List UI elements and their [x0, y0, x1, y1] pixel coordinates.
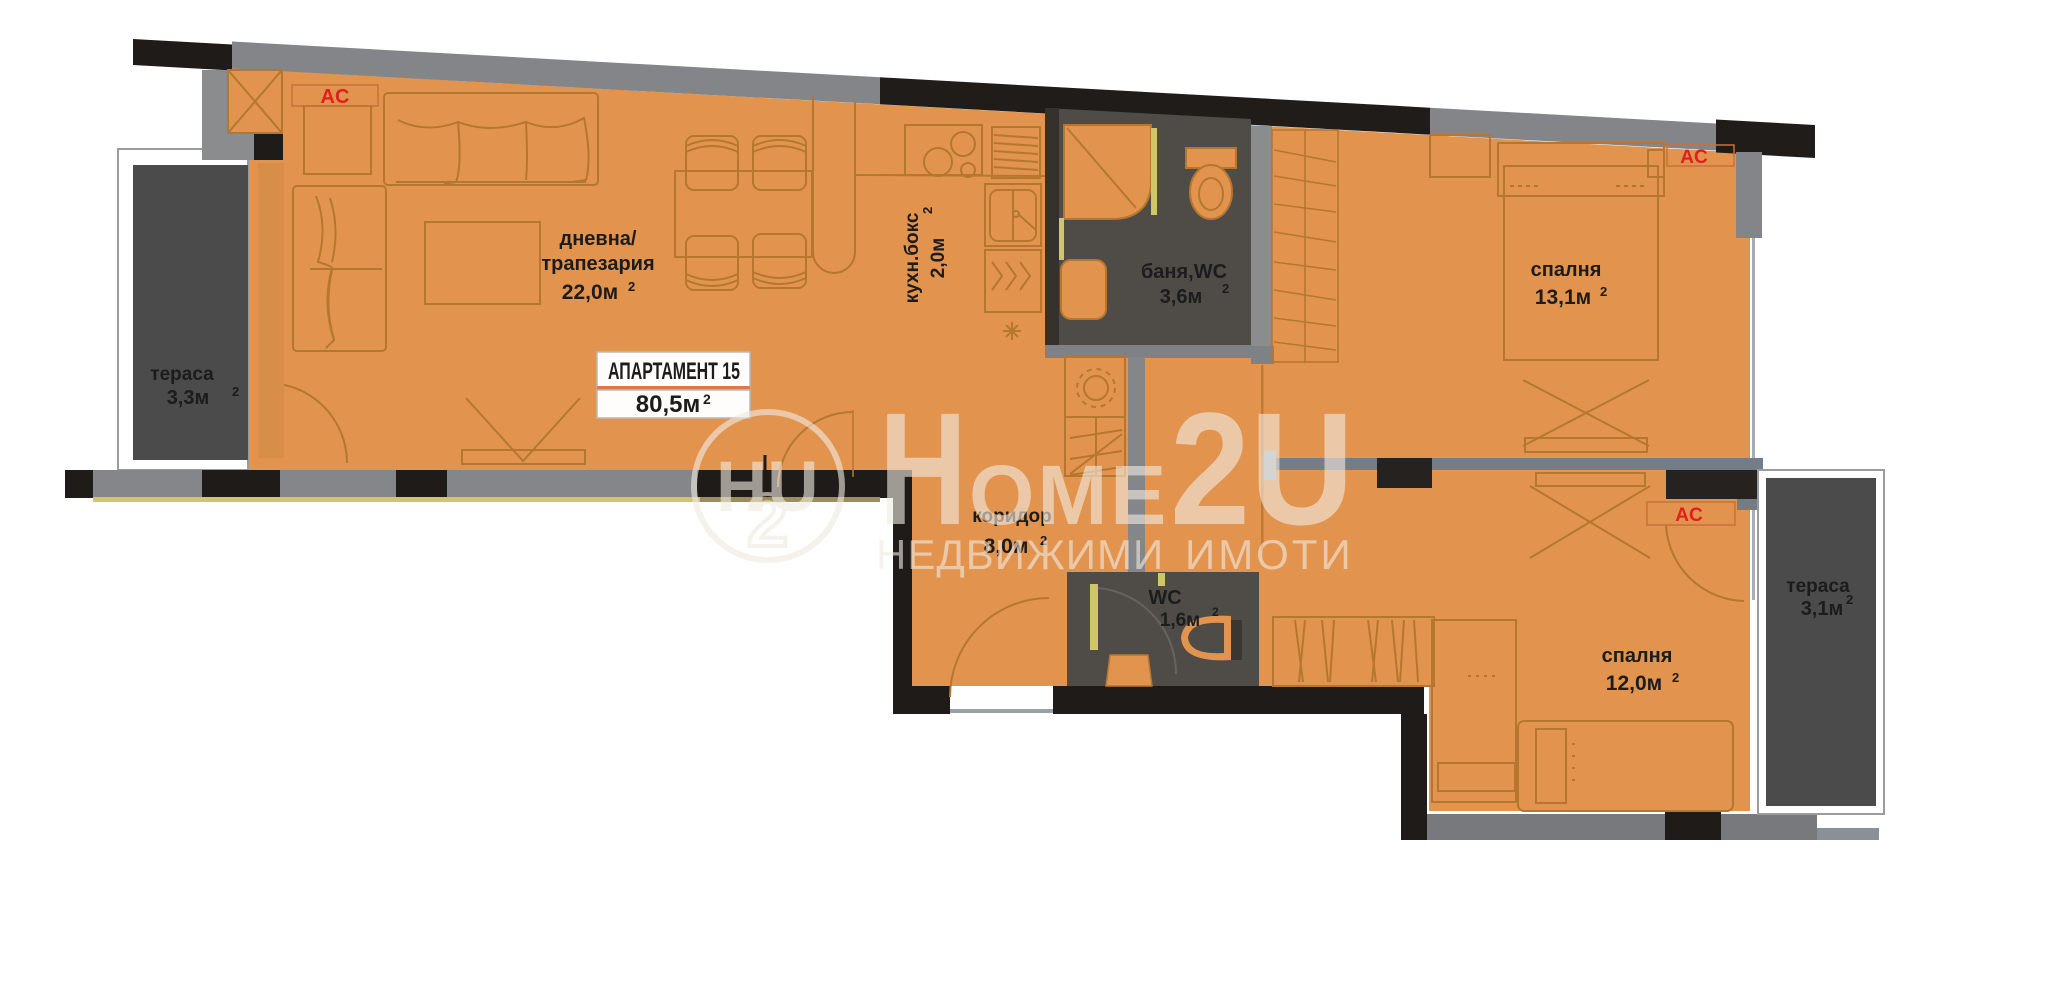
svg-text:3,1м: 3,1м — [1801, 598, 1844, 620]
svg-text:трапезария: трапезария — [541, 253, 654, 275]
svg-text:2: 2 — [1672, 670, 1679, 685]
svg-text:80,5м: 80,5м — [636, 391, 700, 418]
svg-text:AC: AC — [1675, 505, 1703, 526]
svg-text:тераса: тераса — [1786, 576, 1850, 597]
svg-text:кухн.бокс: кухн.бокс — [902, 212, 923, 303]
svg-text:АПАРТАМЕНТ 15: АПАРТАМЕНТ 15 — [608, 358, 740, 385]
svg-text:баня,WC: баня,WC — [1141, 261, 1227, 283]
svg-text:12,0м: 12,0м — [1606, 672, 1662, 695]
svg-text:2: 2 — [1222, 281, 1229, 296]
svg-text:WC: WC — [1148, 587, 1181, 609]
svg-text:2: 2 — [232, 384, 239, 399]
svg-text:НЕДВИЖИМИ: НЕДВИЖИМИ — [876, 531, 1164, 578]
svg-text:2: 2 — [628, 279, 635, 294]
svg-text:2: 2 — [703, 391, 711, 407]
svg-text:2,0м: 2,0м — [928, 238, 949, 278]
svg-text:дневна/: дневна/ — [560, 228, 637, 250]
svg-text:ИМОТИ: ИМОТИ — [1185, 531, 1354, 578]
svg-text:2: 2 — [747, 479, 788, 562]
svg-text:2: 2 — [920, 207, 935, 214]
svg-text:13,1м: 13,1м — [1535, 286, 1591, 309]
svg-text:1,6м: 1,6м — [1160, 610, 1200, 631]
svg-text:AC: AC — [1680, 147, 1708, 168]
svg-text:AC: AC — [321, 86, 350, 108]
svg-text:2: 2 — [1846, 592, 1853, 607]
svg-text:3,3м: 3,3м — [167, 387, 210, 409]
svg-text:тераса: тераса — [150, 364, 214, 385]
svg-text:2: 2 — [1212, 605, 1219, 619]
svg-text:2: 2 — [1600, 284, 1607, 299]
svg-text:OME: OME — [969, 448, 1169, 542]
svg-text:спалня: спалня — [1531, 259, 1602, 281]
svg-text:22,0м: 22,0м — [562, 281, 618, 304]
svg-text:спалня: спалня — [1602, 645, 1673, 667]
svg-text:3,6м: 3,6м — [1160, 286, 1203, 308]
